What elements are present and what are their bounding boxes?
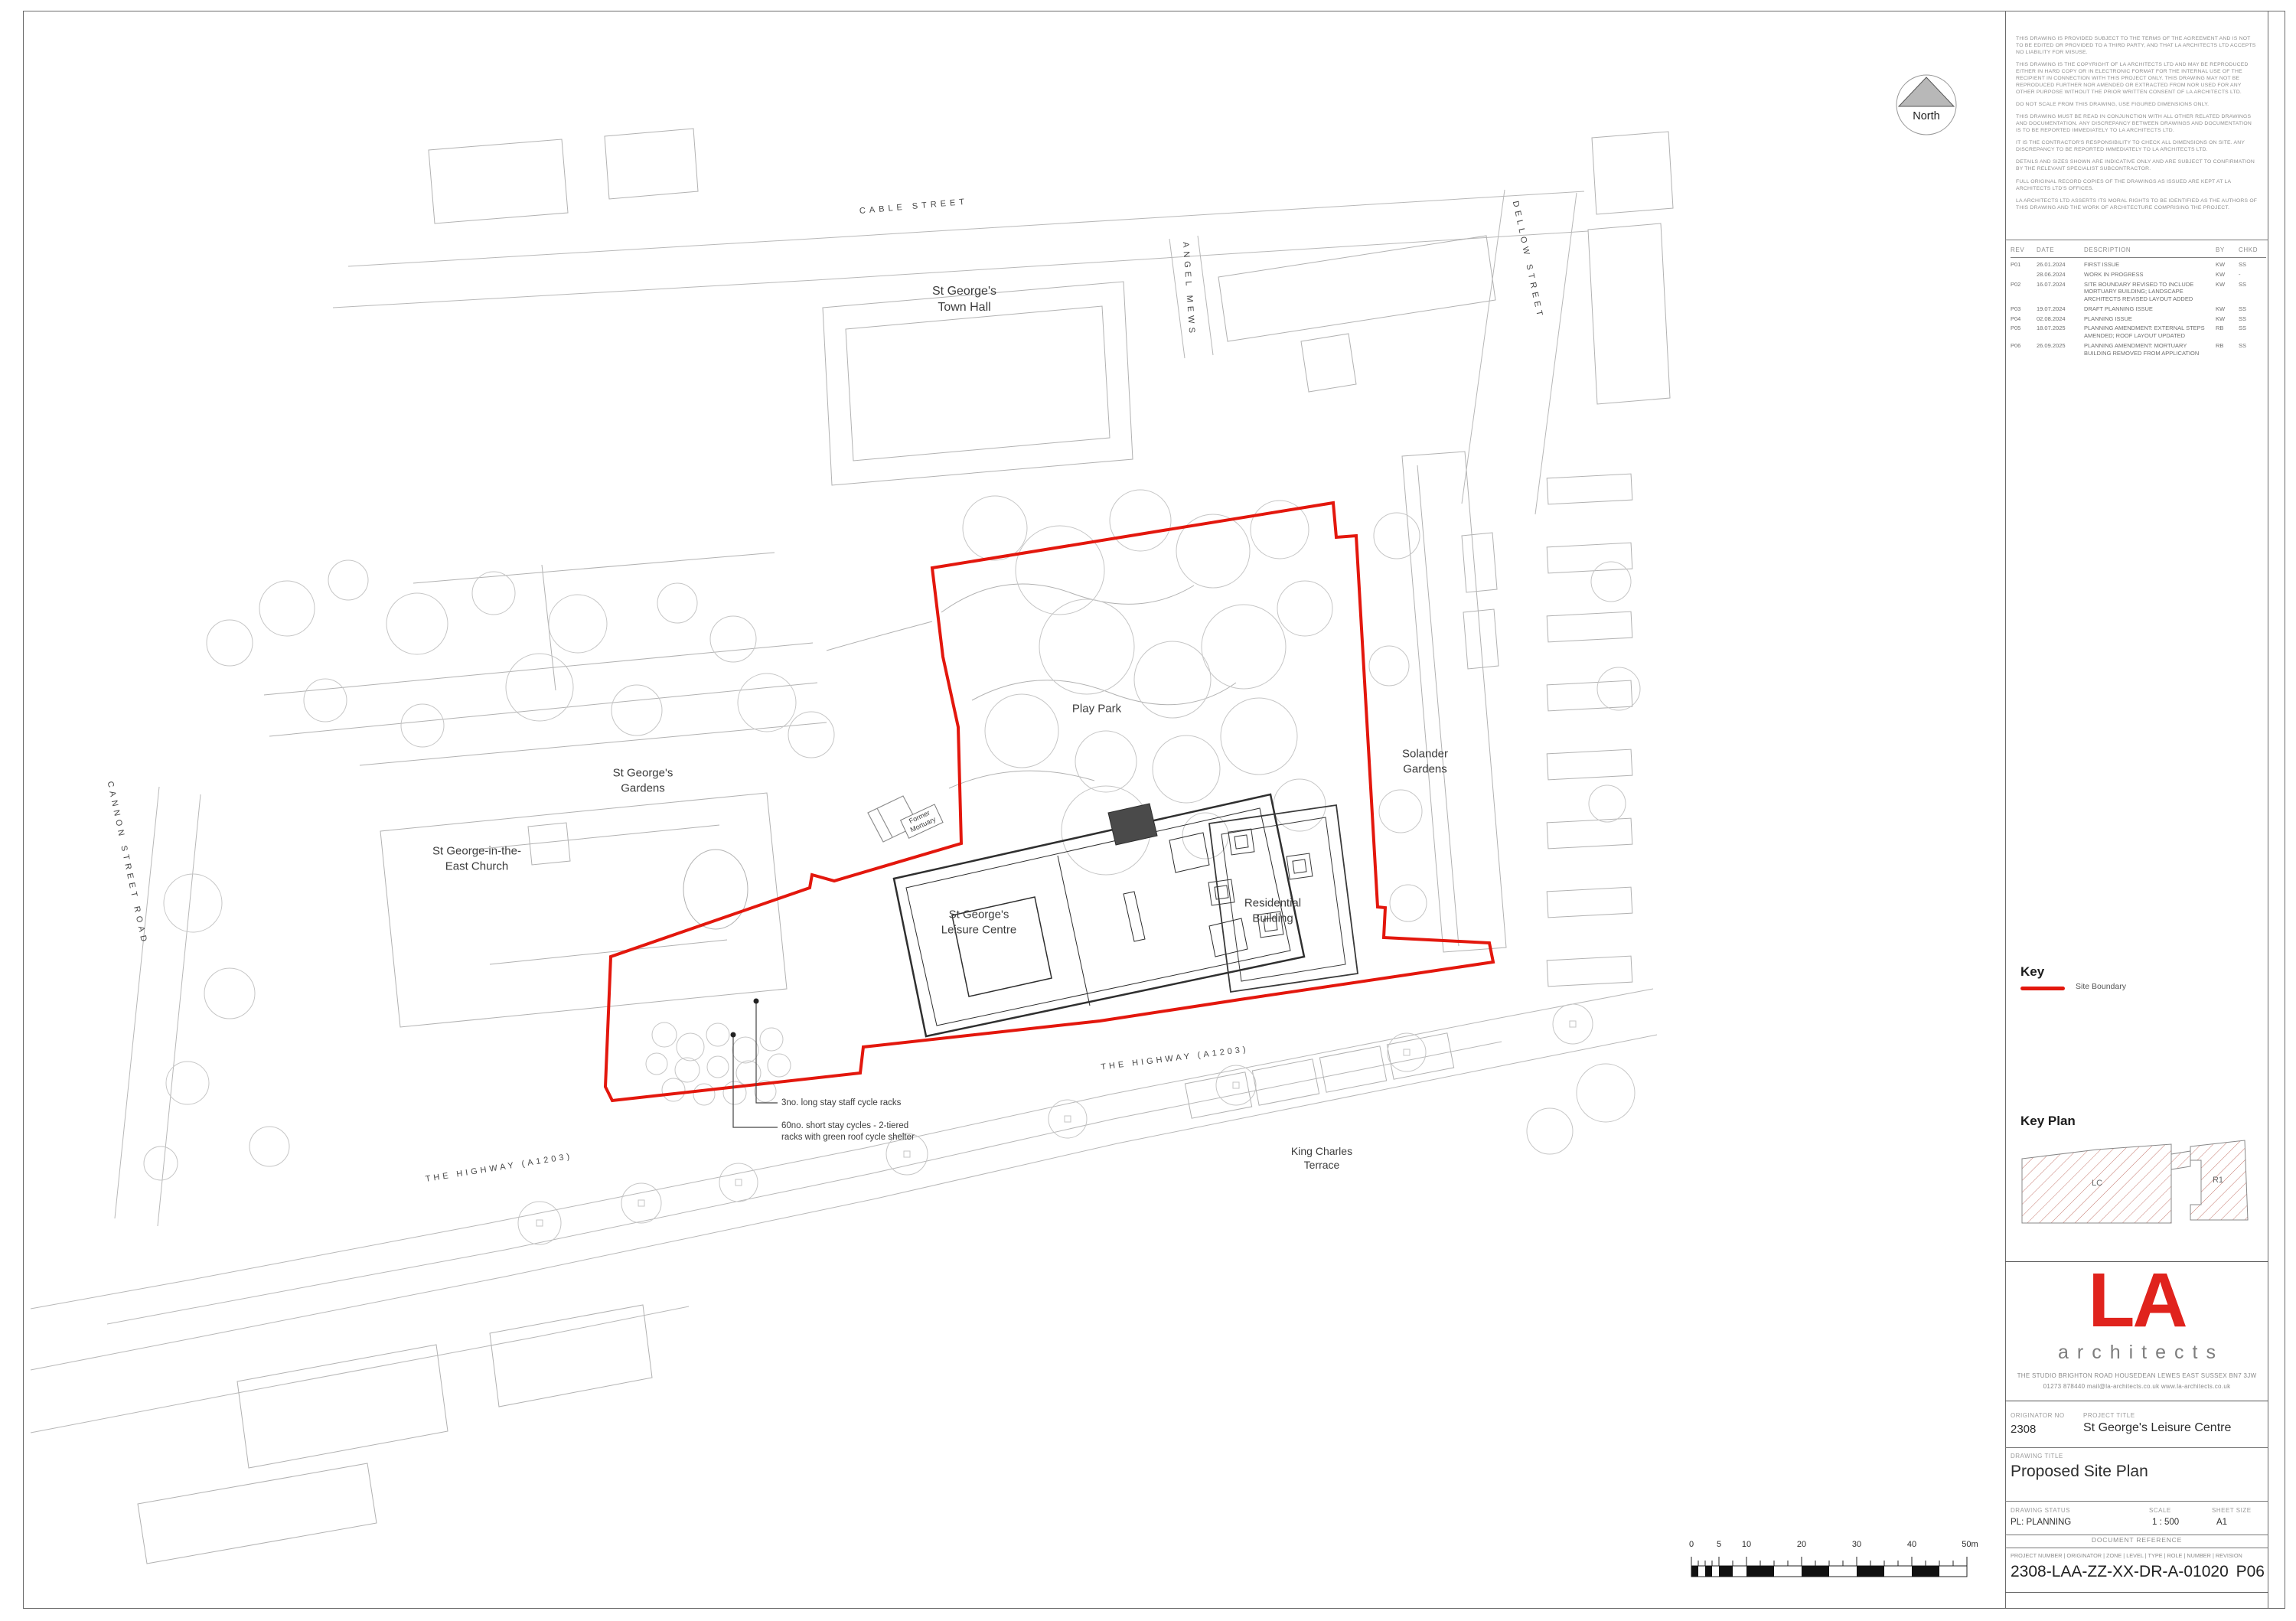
rev-cell: P04	[2011, 315, 2033, 323]
column-header: DATE	[2037, 246, 2081, 253]
rev-cell: P03	[2011, 305, 2033, 313]
document-reference-fields: PROJECT NUMBER | ORIGINATOR | ZONE | LEV…	[2011, 1552, 2242, 1559]
rev-cell: P01	[2011, 261, 2033, 269]
rev-cell: 26.01.2024	[2037, 261, 2081, 269]
note-text: THIS DRAWING MUST BE READ IN CONJUNCTION…	[2016, 113, 2258, 134]
rev-cell: SS	[2239, 315, 2266, 323]
originator-label: ORIGINATOR NO	[2011, 1412, 2065, 1419]
note-text: DETAILS AND SIZES SHOWN ARE INDICATIVE O…	[2016, 158, 2258, 172]
general-notes: THIS DRAWING IS PROVIDED SUBJECT TO THE …	[2016, 35, 2258, 217]
rev-cell	[2011, 271, 2033, 279]
panel-left-border	[2005, 11, 2006, 1609]
rev-cell: P05	[2011, 325, 2033, 340]
note-text: LA ARCHITECTS LTD ASSERTS ITS MORAL RIGH…	[2016, 197, 2258, 211]
rev-cell: SITE BOUNDARY REVISED TO INCLUDE MORTUAR…	[2084, 281, 2213, 303]
rev-cell: KW	[2216, 305, 2236, 313]
drawing-title-label: DRAWING TITLE	[2011, 1453, 2063, 1460]
rev-cell: FIRST ISSUE	[2084, 261, 2213, 269]
rev-cell: DRAFT PLANNING ISSUE	[2084, 305, 2213, 313]
rev-cell: -	[2239, 271, 2266, 279]
firm-logo-sub: architects	[2005, 1342, 2268, 1364]
st-georges-gardens-label: St George's Gardens	[613, 766, 673, 796]
rev-cell: KW	[2216, 281, 2236, 303]
rev-cell: SS	[2239, 342, 2266, 357]
king-charles-terrace-label: King Charles Terrace	[1291, 1144, 1352, 1172]
drawing-sheet: { "sheet": { "north_label": "North", "no…	[0, 0, 2296, 1621]
scale-value: 1 : 500	[2152, 1518, 2179, 1527]
rev-cell: 16.07.2024	[2037, 281, 2081, 303]
project-title-label: PROJECT TITLE	[2083, 1412, 2135, 1419]
drawing-status-value: PL: PLANNING	[2011, 1518, 2071, 1527]
rev-cell: RB	[2216, 342, 2236, 357]
divider	[2005, 1501, 2268, 1502]
north-label: North	[1913, 110, 1939, 122]
rev-cell: WORK IN PROGRESS	[2084, 271, 2213, 279]
rev-cell: RB	[2216, 325, 2236, 340]
scale-bar-label: 20	[1797, 1540, 1806, 1549]
key-plan-drawing	[2020, 1134, 2250, 1235]
document-reference-revision: P06	[2236, 1563, 2265, 1581]
sheet-border	[23, 11, 2285, 1609]
scale-bar-label: 30	[1852, 1540, 1861, 1549]
rev-cell: KW	[2216, 271, 2236, 279]
firm-address-line2: 01273 878440 mail@la-architects.co.uk ww…	[2005, 1383, 2268, 1390]
rev-cell: P02	[2011, 281, 2033, 303]
key-title: Key	[2020, 964, 2044, 980]
note-text: THIS DRAWING IS PROVIDED SUBJECT TO THE …	[2016, 35, 2258, 56]
rev-cell: 28.06.2024	[2037, 271, 2081, 279]
site-boundary-label: Site Boundary	[2076, 982, 2126, 991]
rev-cell: P06	[2011, 342, 2033, 357]
rev-cell: 19.07.2024	[2037, 305, 2081, 313]
note-text: FULL ORIGINAL RECORD COPIES OF THE DRAWI…	[2016, 178, 2258, 192]
panel-right-border	[2268, 11, 2268, 1609]
document-reference-row: 2308-LAA-ZZ-XX-DR-A-01020 P06	[2011, 1563, 2265, 1581]
rev-cell: PLANNING ISSUE	[2084, 315, 2213, 323]
column-header: REV	[2011, 246, 2033, 253]
drawing-title-value: Proposed Site Plan	[2011, 1463, 2148, 1481]
sheet-size-label: SHEET SIZE	[2212, 1507, 2252, 1514]
rev-cell: 02.08.2024	[2037, 315, 2081, 323]
rev-cell: 26.09.2025	[2037, 342, 2081, 357]
scale-bar-label: 5	[1717, 1540, 1721, 1549]
scale-bar-label: 0	[1689, 1540, 1694, 1549]
document-reference-value: 2308-LAA-ZZ-XX-DR-A-01020	[2011, 1563, 2229, 1581]
firm-logo: LA	[2005, 1264, 2268, 1337]
residential-building-label: Residential Building	[1244, 896, 1301, 926]
rev-cell: SS	[2239, 325, 2266, 340]
divider	[2005, 240, 2268, 240]
note-text: IT IS THE CONTRACTOR'S RESPONSIBILITY TO…	[2016, 139, 2258, 153]
play-park-label: Play Park	[1072, 701, 1121, 716]
solander-gardens-label: Solander Gardens	[1402, 747, 1448, 777]
scale-bar-label: 50m	[1962, 1540, 1978, 1549]
originator-value: 2308	[2011, 1423, 2036, 1436]
divider	[2005, 1592, 2268, 1593]
divider	[2005, 1548, 2268, 1548]
scale-label: SCALE	[2149, 1507, 2171, 1514]
note-text: DO NOT SCALE FROM THIS DRAWING, USE FIGU…	[2016, 101, 2258, 108]
rev-cell: SS	[2239, 305, 2266, 313]
scale-bar-label: 40	[1907, 1540, 1916, 1549]
key-plan-r1-label: R1	[2213, 1176, 2223, 1185]
rev-cell: PLANNING AMENDMENT: MORTUARY BUILDING RE…	[2084, 342, 2213, 357]
drawing-status-label: DRAWING STATUS	[2011, 1507, 2070, 1514]
note-text: THIS DRAWING IS THE COPYRIGHT OF LA ARCH…	[2016, 61, 2258, 96]
key-plan-title: Key Plan	[2020, 1114, 2076, 1129]
document-reference-label: DOCUMENT REFERENCE	[2005, 1536, 2268, 1544]
divider	[2005, 1535, 2268, 1535]
sheet-size-value: A1	[2216, 1518, 2227, 1527]
church-label: St George-in-the- East Church	[432, 844, 521, 874]
rev-cell: SS	[2239, 281, 2266, 303]
site-boundary-swatch	[2020, 987, 2065, 990]
firm-address-line1: THE STUDIO BRIGHTON ROAD HOUSEDEAN LEWES…	[2005, 1372, 2268, 1379]
column-header: BY	[2216, 246, 2236, 253]
rev-cell: PLANNING AMENDMENT: EXTERNAL STEPS AMEND…	[2084, 325, 2213, 340]
column-header: CHKD	[2239, 246, 2266, 253]
town-hall-label: St George's Town Hall	[932, 284, 996, 316]
cycle-note-short-stay: 60no. short stay cycles - 2-tiered racks…	[781, 1120, 915, 1143]
rev-cell: SS	[2239, 261, 2266, 269]
rev-cell: 18.07.2025	[2037, 325, 2081, 340]
rev-cell: KW	[2216, 261, 2236, 269]
project-title-value: St George's Leisure Centre	[2083, 1421, 2231, 1435]
revision-table: REV DATE DESCRIPTION BY CHKD P01 26.01.2…	[2011, 246, 2266, 357]
revision-table-header: REV DATE DESCRIPTION BY CHKD	[2011, 246, 2266, 258]
divider	[2005, 1401, 2268, 1401]
rev-cell: KW	[2216, 315, 2236, 323]
scale-bar-label: 10	[1742, 1540, 1751, 1549]
column-header: DESCRIPTION	[2084, 246, 2213, 253]
leisure-centre-label: St George's Leisure Centre	[941, 908, 1016, 938]
cycle-note-long-stay: 3no. long stay staff cycle racks	[781, 1098, 901, 1109]
divider	[2005, 1447, 2268, 1448]
key-plan-lc-label: LC	[2092, 1179, 2102, 1188]
